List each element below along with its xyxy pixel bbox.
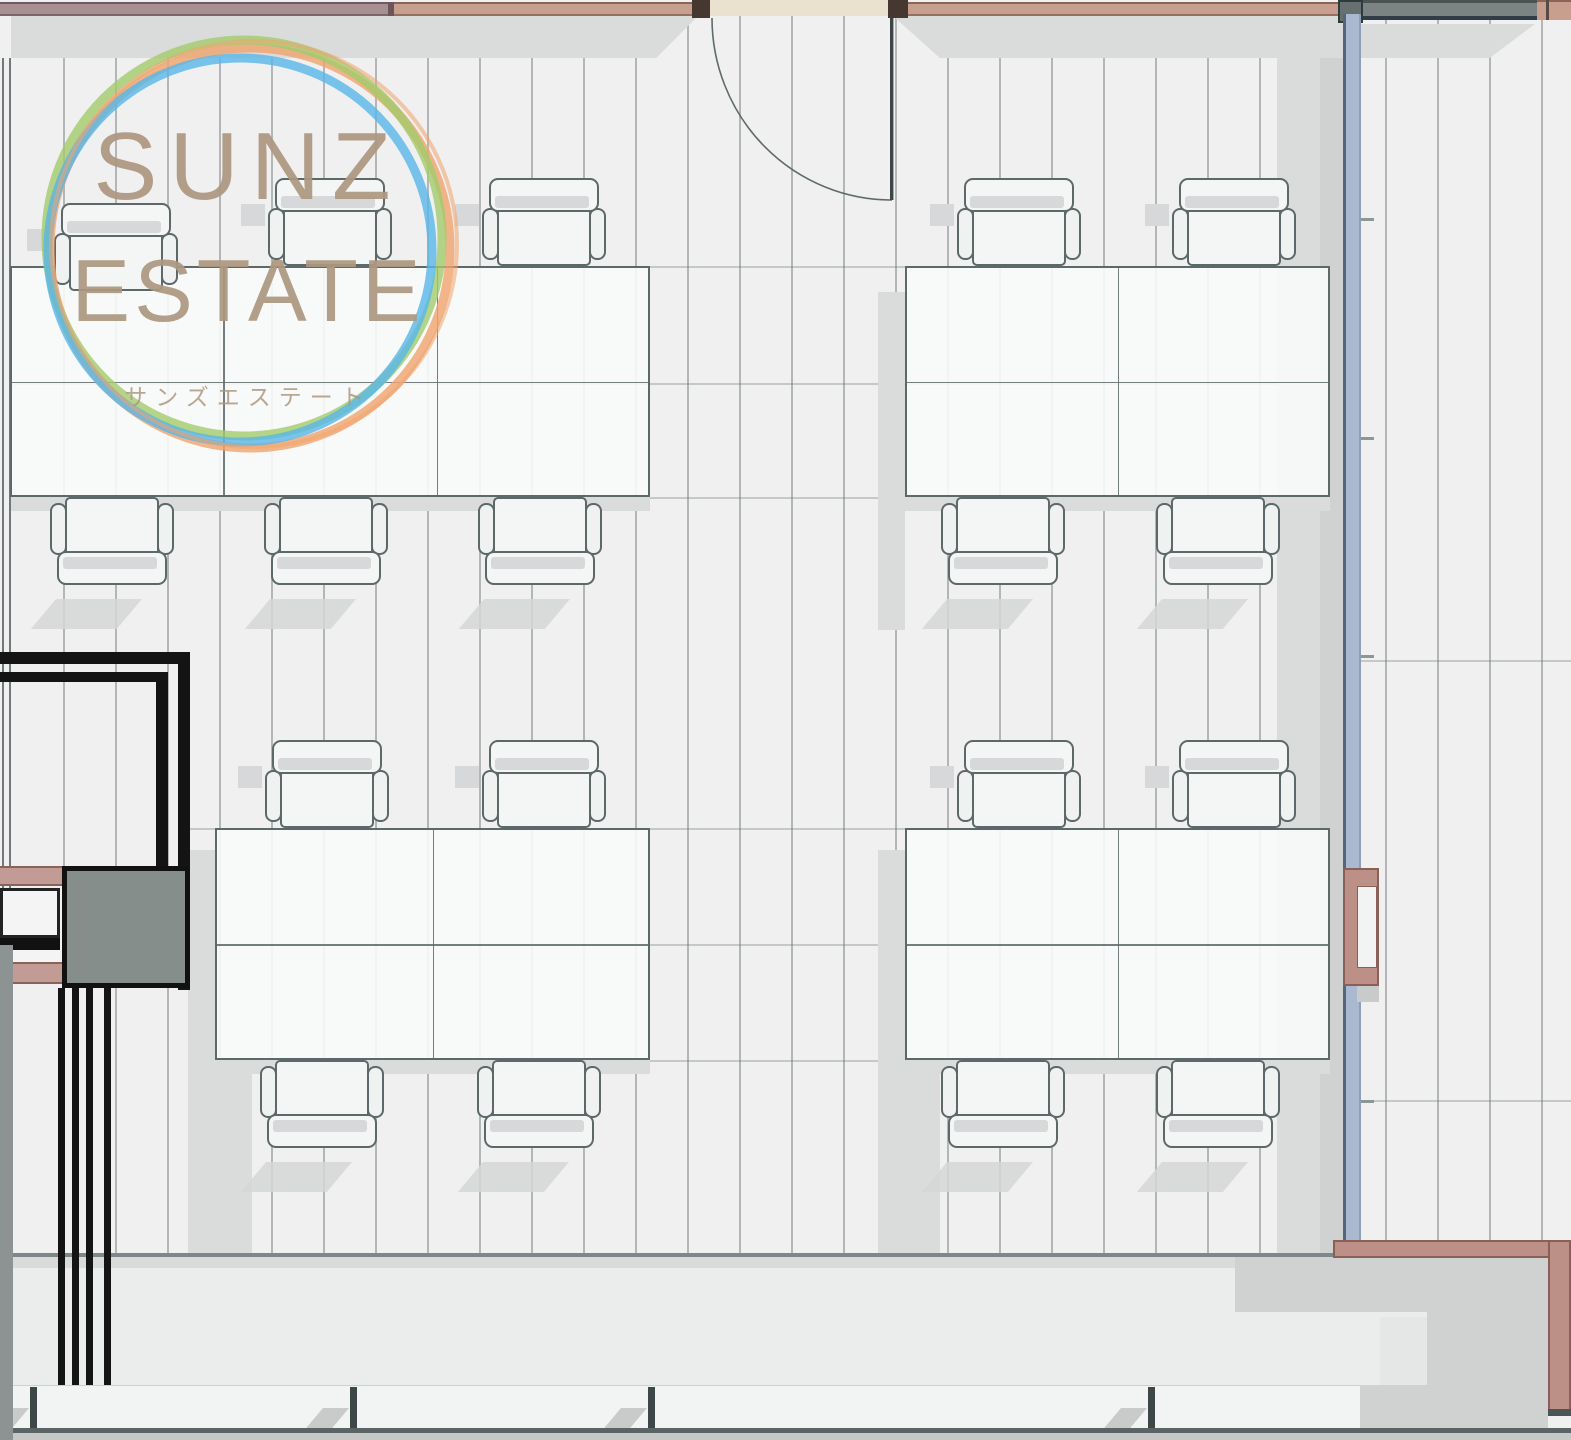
wall-top-salmon-corner [1537, 0, 1571, 20]
logo-subtitle-japanese: サンズエステート [28, 378, 468, 412]
wall-joint [1546, 0, 1549, 20]
wall-coral-cap [1548, 1409, 1571, 1416]
wall-seam-tick [1361, 1100, 1374, 1103]
wall-seam-tick [1361, 218, 1374, 221]
logo-title-line1: SUNZ [28, 112, 468, 222]
wall-panel-tab [1357, 986, 1379, 1002]
door-swing [700, 10, 910, 220]
left-wall-gray [0, 945, 13, 1440]
door-leaf [890, 18, 893, 200]
wall-coral-vertical [1548, 1240, 1571, 1415]
wall-panel-pink-inset [1357, 886, 1377, 968]
wall-blue-partition [1343, 14, 1361, 1257]
wall-top-salmon-right [908, 2, 1338, 16]
wall-seam-tick [1361, 437, 1374, 440]
floorplan-canvas: SUNZ ESTATE サンズエステート [0, 0, 1571, 1440]
logo-watermark: SUNZ ESTATE サンズエステート [0, 0, 500, 500]
wall-top-darkgray [1363, 0, 1537, 20]
wall-seam-tick [1361, 655, 1374, 658]
door-arc [712, 18, 892, 200]
wall-coral-horizontal [1333, 1240, 1553, 1258]
logo-title-line2: ESTATE [28, 240, 468, 342]
